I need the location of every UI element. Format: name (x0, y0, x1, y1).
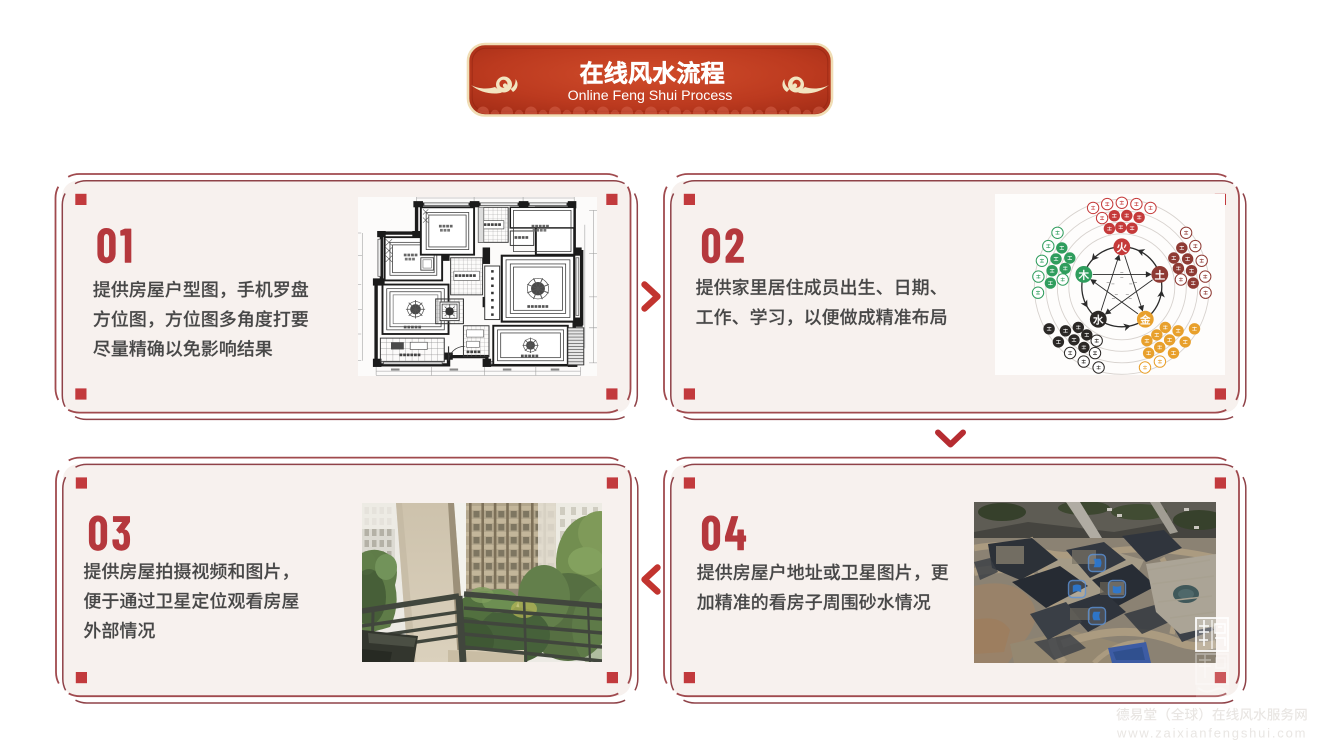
svg-text:Online Feng Shui Process: Online Feng Shui Process (568, 88, 733, 104)
svg-text:www.zaixianfengshui.com: www.zaixianfengshui.com (1116, 726, 1307, 741)
